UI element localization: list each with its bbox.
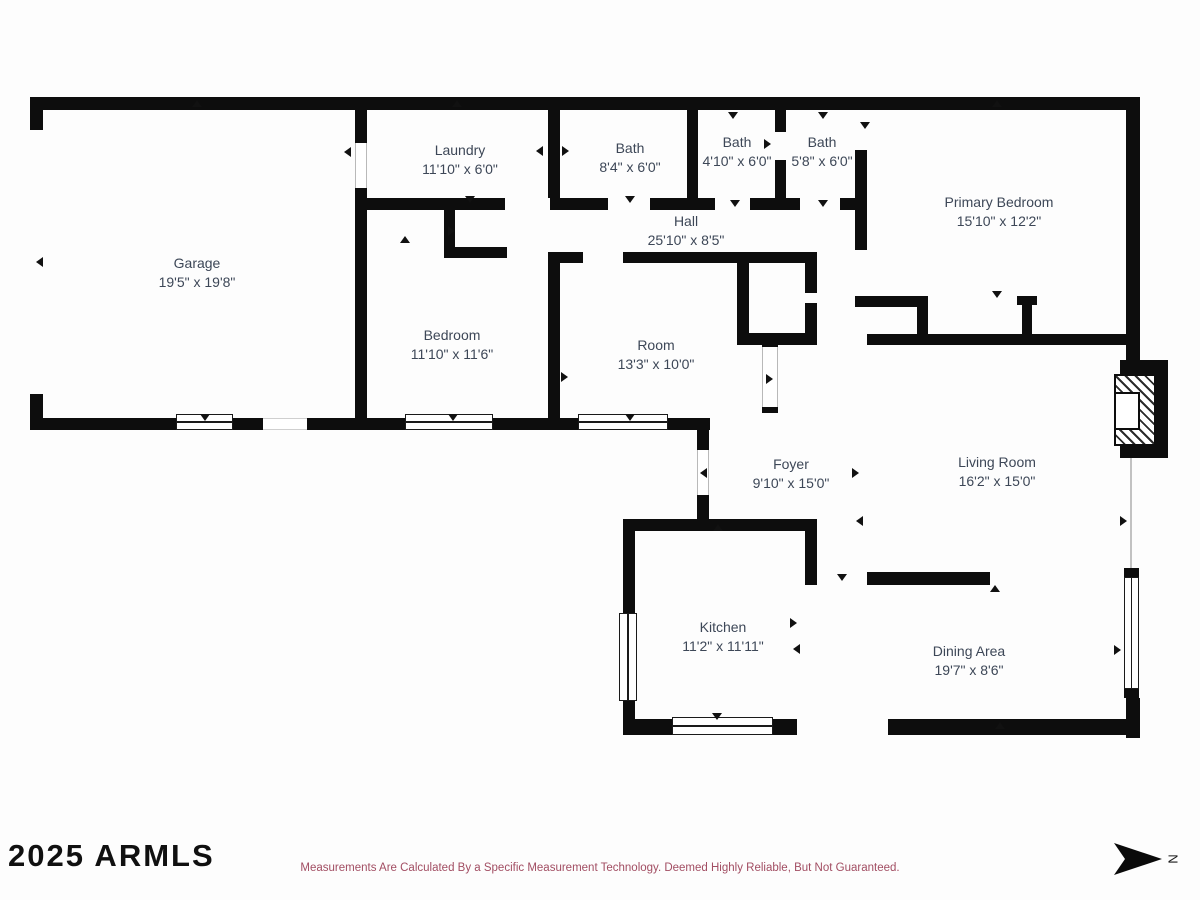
door-marker [860,122,870,129]
wall [233,418,263,430]
door-marker [200,414,210,421]
door-marker [793,644,800,654]
wall [307,418,367,430]
door-marker [790,618,797,628]
door-marker [562,146,569,156]
wall [1022,305,1032,337]
door-marker [852,468,859,478]
door-opening [355,143,367,188]
room-label-dining-area: Dining Area 19'7" x 8'6" [933,642,1005,680]
room-name: Bedroom [411,326,494,345]
wall [855,150,867,250]
room-name: Foyer [753,455,830,474]
fireplace-firebox [1114,392,1140,430]
wall [917,307,928,335]
door-marker [625,196,635,203]
room-dims: 16'2" x 15'0" [958,472,1036,491]
door-marker [625,414,635,421]
window [578,414,668,430]
door-marker [448,226,455,236]
wall [493,418,578,430]
room-label-foyer: Foyer 9'10" x 15'0" [753,455,830,493]
room-dims: 8'4" x 6'0" [599,158,660,177]
door-marker [465,196,475,203]
room-label-room: Room 13'3" x 10'0" [618,336,695,374]
room-dims: 25'10" x 8'5" [648,231,725,250]
room-dims: 5'8" x 6'0" [791,152,852,171]
door-marker [36,257,43,267]
room-dims: 11'2" x 11'11" [682,637,763,656]
wall [888,719,1140,735]
room-label-bath-1: Bath 8'4" x 6'0" [599,139,660,177]
door-marker [1114,645,1121,655]
door-marker [992,100,1002,107]
wall [355,188,367,418]
floorplan-page: Garage 19'5" x 19'8" Laundry 11'10" x 6'… [0,0,1200,900]
wall [548,110,560,198]
wall [668,418,710,430]
room-name: Primary Bedroom [945,193,1054,212]
door-marker [818,200,828,207]
wall [775,110,786,132]
door-marker [1120,516,1127,526]
compass-n-label: N [1166,854,1181,863]
wall [1017,296,1037,305]
wall [548,252,560,430]
door-marker [766,374,773,384]
room-dims: 9'10" x 15'0" [753,474,830,493]
wall [687,110,698,210]
room-dims: 11'10" x 6'0" [422,160,498,179]
wall [762,407,778,413]
wall [1124,568,1139,577]
armls-watermark: 2025 ARMLS [8,838,215,874]
room-label-living-room: Living Room 16'2" x 15'0" [958,453,1036,491]
door-marker [700,468,707,478]
door-opening [263,418,307,430]
wall [867,334,1133,345]
wall [697,430,709,450]
wall [1126,110,1140,362]
door-marker [856,516,863,526]
wall [805,303,817,333]
wall [855,296,928,307]
window [619,613,637,701]
wall [867,572,990,585]
door-marker [837,574,847,581]
door-marker [818,112,828,119]
door-marker [713,524,723,531]
north-arrow-icon: N [1112,838,1182,880]
room-name: Hall [648,212,725,231]
room-label-hall: Hall 25'10" x 8'5" [648,212,725,250]
room-name: Laundry [422,141,498,160]
door-marker [448,414,458,421]
door-marker [344,147,351,157]
door-marker [990,585,1000,592]
wall [455,247,507,258]
wall [697,495,709,523]
door-marker [992,291,1002,298]
wall [355,198,505,210]
door-marker [452,100,462,107]
wall [775,160,786,210]
room-label-bedroom: Bedroom 11'10" x 11'6" [411,326,494,364]
room-name: Living Room [958,453,1036,472]
wall [1124,689,1139,698]
room-dims: 19'5" x 19'8" [159,273,236,292]
wall [623,252,817,263]
wall [30,110,43,130]
room-dims: 4'10" x 6'0" [703,152,772,171]
room-label-laundry: Laundry 11'10" x 6'0" [422,141,498,179]
door-marker [995,722,1005,729]
room-name: Kitchen [682,618,763,637]
room-dims: 15'10" x 12'2" [945,212,1054,231]
room-label-bath-3: Bath 5'8" x 6'0" [791,133,852,171]
room-name: Bath [791,133,852,152]
wall [30,418,176,430]
wall [355,110,367,143]
room-label-bath-2: Bath 4'10" x 6'0" [703,133,772,171]
wall [805,519,817,585]
room-name: Bath [703,133,772,152]
door-marker [712,713,722,720]
disclaimer-text: Measurements Are Calculated By a Specifi… [300,862,899,874]
window [1124,577,1139,689]
room-dims: 11'10" x 11'6" [411,345,494,364]
door-marker [561,372,568,382]
wall [737,263,749,333]
door-marker [536,146,543,156]
door-marker [730,200,740,207]
door-marker [192,100,202,107]
room-name: Dining Area [933,642,1005,661]
door-marker [728,112,738,119]
wall [805,263,817,293]
wall [698,198,715,210]
room-label-garage: Garage 19'5" x 19'8" [159,254,236,292]
patio-opening [1130,458,1132,568]
room-dims: 19'7" x 8'6" [933,661,1005,680]
room-name: Room [618,336,695,355]
wall [550,198,608,210]
room-label-kitchen: Kitchen 11'2" x 11'11" [682,618,763,656]
room-label-primary-bedroom: Primary Bedroom 15'10" x 12'2" [945,193,1054,231]
door-marker [400,236,410,243]
room-name: Garage [159,254,236,273]
wall [367,418,405,430]
window [672,717,773,735]
north-arrow-svg: N [1112,838,1182,880]
room-dims: 13'3" x 10'0" [618,355,695,374]
room-name: Bath [599,139,660,158]
